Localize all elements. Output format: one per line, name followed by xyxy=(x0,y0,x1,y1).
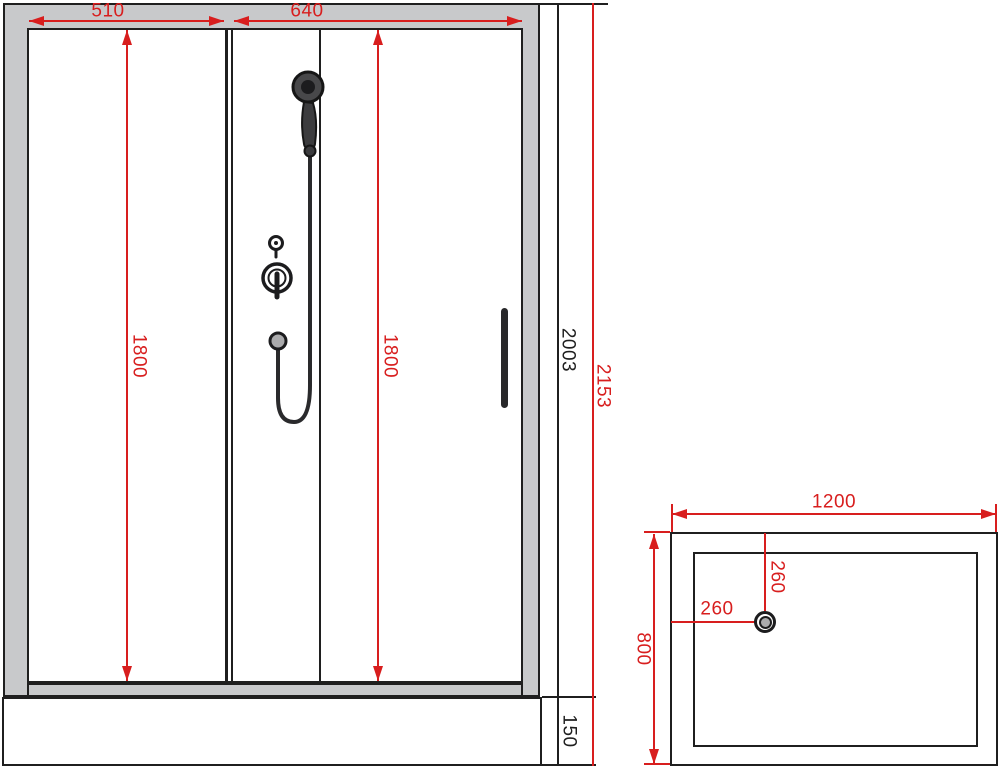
arrow-right-icon xyxy=(981,509,996,519)
dim-line-260-horizontal xyxy=(671,621,755,623)
tray-inner-rect xyxy=(693,552,978,747)
dim-tick-800-top xyxy=(644,531,670,533)
arrow-up-icon xyxy=(649,534,659,549)
technical-drawing-canvas: 510 640 1800 1800 2003 2153 150 260 xyxy=(0,0,1000,770)
drain-inner-icon xyxy=(759,616,772,629)
dim-label-260-horizontal: 260 xyxy=(700,600,733,619)
arrow-left-icon xyxy=(672,509,687,519)
dim-label-260-vertical: 260 xyxy=(768,560,787,593)
dim-line-1200 xyxy=(672,513,996,515)
dim-label-800: 800 xyxy=(634,632,653,665)
dim-label-1200: 1200 xyxy=(812,493,856,512)
arrow-down-icon xyxy=(649,749,659,764)
top-view: 260 260 1200 800 xyxy=(0,0,1000,770)
